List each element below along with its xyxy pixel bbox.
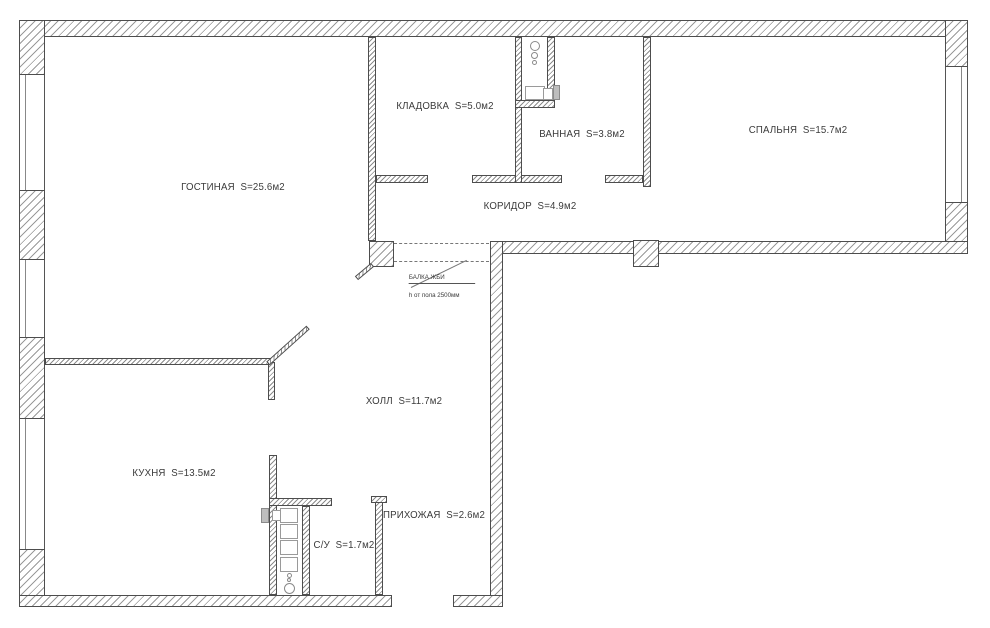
duct-panel-icon [553, 85, 560, 100]
wall-top [19, 20, 968, 37]
wall-right-pier-2 [945, 202, 968, 242]
wall-storage-south [376, 175, 428, 183]
wc-duct-attachment-icon [272, 510, 281, 521]
wall-bath-bedroom [643, 37, 651, 187]
window-left-1 [19, 75, 45, 190]
beam-note: БАЛКА ЖБИ h от пола 2500мм [402, 266, 475, 308]
wc-riser-icon-small-2 [287, 578, 291, 582]
wall-left-pier-2 [19, 190, 45, 260]
wc-duct-box-icon-2 [280, 524, 298, 539]
window-left-3 [19, 419, 45, 549]
wall-hall-right [490, 241, 503, 607]
wc-riser-icon-large [284, 583, 295, 594]
wall-wc-north [269, 498, 332, 506]
wc-panel-icon [261, 508, 269, 523]
wall-left-pier-1 [19, 20, 45, 75]
wall-right-pier-1 [945, 20, 968, 67]
wall-kitchen-east-upper [268, 362, 275, 400]
room-label-bedroom: СПАЛЬНЯ S=15.7м2 [749, 124, 848, 136]
door-leaf-kitchen [266, 326, 309, 366]
beam-note-line2: h от пола 2500мм [409, 292, 460, 299]
beam-dashed-line-bottom [394, 261, 489, 262]
plumbing-riser-icon-large [530, 41, 540, 51]
floor-plan: БАЛКА ЖБИ h от пола 2500мм ГОСТИНАЯ S=25… [0, 0, 990, 628]
wall-bottom-right [453, 595, 503, 607]
beam-note-line1: БАЛКА ЖБИ [409, 274, 476, 284]
duct-box-icon [525, 86, 545, 100]
room-label-kitchen: КУХНЯ S=13.5м2 [132, 467, 215, 479]
room-label-corridor: КОРИДОР S=4.9м2 [484, 200, 577, 212]
room-label-hall: ХОЛЛ S=11.7м2 [366, 395, 442, 407]
wall-hall-pillar [369, 241, 394, 267]
window-left-2 [19, 260, 45, 337]
wall-mid-pillar [633, 240, 659, 267]
room-label-living: ГОСТИНАЯ S=25.6м2 [181, 181, 285, 193]
wall-mid-bottom [490, 241, 968, 254]
wall-wc-east [375, 496, 383, 595]
room-label-bathroom: ВАННАЯ S=3.8м2 [539, 128, 625, 140]
wall-bottom-left [19, 595, 392, 607]
door-leaf-living-hall [355, 263, 374, 280]
plumbing-riser-icon-medium [531, 52, 538, 59]
wall-living-storage [368, 37, 376, 241]
wall-bath-south-east [605, 175, 643, 183]
wall-shaft-bottom [515, 100, 555, 108]
wc-duct-box-icon-1 [280, 508, 298, 523]
room-label-entry: ПРИХОЖАЯ S=2.6м2 [383, 509, 485, 521]
wall-kitchen-north [45, 358, 273, 365]
wall-kitchen-east-lower [269, 455, 277, 595]
duct-box-icon-small [543, 88, 553, 100]
plumbing-riser-icon-small [532, 60, 537, 65]
room-label-wc: С/У S=1.7м2 [314, 539, 375, 551]
wc-duct-box-icon-3 [280, 540, 298, 555]
wall-left-pier-3 [19, 337, 45, 419]
wc-duct-box-icon-4 [280, 557, 298, 572]
window-right-1 [945, 67, 968, 202]
beam-dashed-line-top [394, 243, 489, 244]
wall-wc-shaft-east [302, 506, 310, 595]
wall-shaft-west [515, 37, 522, 183]
room-label-storage: КЛАДОВКА S=5.0м2 [396, 100, 493, 112]
wall-wc-east-cap [371, 496, 387, 503]
